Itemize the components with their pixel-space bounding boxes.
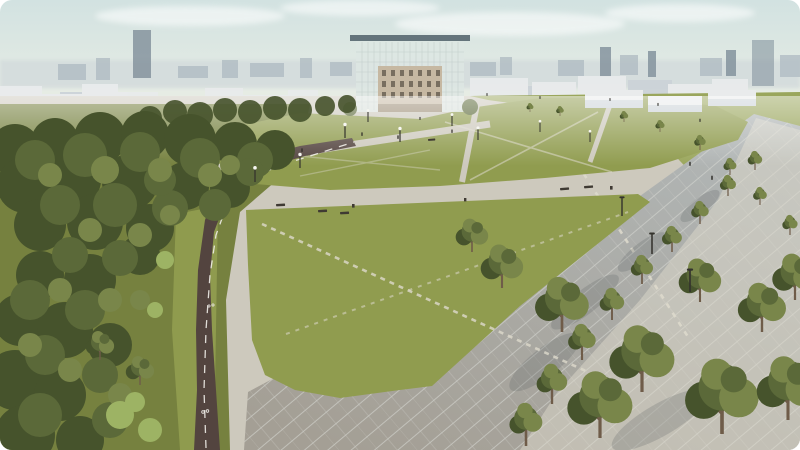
- park-render-image: Computer-generated bird's-eye rendering …: [0, 0, 800, 450]
- page: Computer-generated bird's-eye rendering …: [0, 0, 800, 450]
- roof-canopy: [350, 35, 470, 41]
- tall-tower-right: [752, 40, 774, 86]
- tall-tower-left: [133, 30, 151, 78]
